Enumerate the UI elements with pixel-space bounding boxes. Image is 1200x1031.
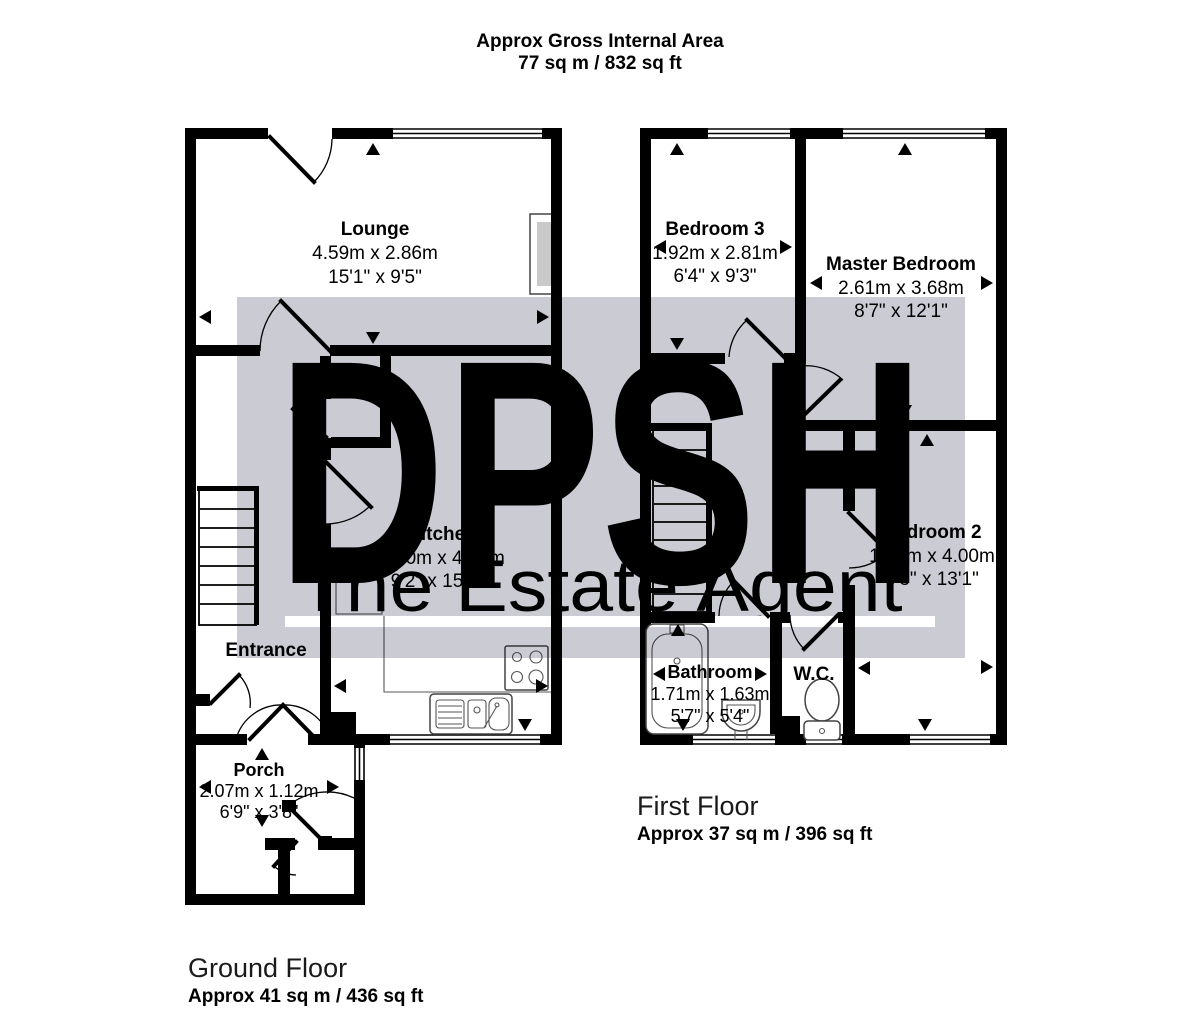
porch-label: Porch — [233, 760, 284, 780]
kitchen-sink — [430, 694, 512, 734]
header-area: 77 sq m / 832 sq ft — [518, 53, 682, 74]
first-floor-title: First Floor — [637, 791, 759, 821]
bathroom-imperial: 5'7" x 5'4" — [671, 706, 750, 726]
wc-label: W.C. — [793, 664, 834, 685]
lounge-metric: 4.59m x 2.86m — [312, 243, 438, 264]
porch-imperial: 6'9" x 3'8" — [220, 802, 299, 822]
first-floor-area: Approx 37 sq m / 396 sq ft — [637, 824, 873, 845]
toilet — [804, 679, 840, 740]
header-title: Approx Gross Internal Area — [476, 31, 724, 52]
lounge-label: Lounge — [341, 219, 410, 240]
bedroom3-label: Bedroom 3 — [665, 219, 764, 240]
master-bedroom-label: Master Bedroom — [826, 254, 976, 275]
lounge-imperial: 15'1" x 9'5" — [328, 267, 422, 288]
ground-floor-title: Ground Floor — [188, 953, 347, 983]
bedroom3-metric: 1.92m x 2.81m — [652, 243, 778, 264]
floorplan-page: Approx Gross Internal Area 77 sq m / 832… — [0, 0, 1200, 1031]
watermark: DPSH The Estate Agent — [237, 293, 965, 658]
bedroom3-imperial: 6'4" x 9'3" — [673, 266, 756, 287]
floorplan-canvas: Approx Gross Internal Area 77 sq m / 832… — [0, 0, 1200, 1031]
bathroom-metric: 1.71m x 1.63m — [650, 684, 769, 704]
watermark-underline — [285, 616, 935, 627]
watermark-tagline: The Estate Agent — [298, 546, 903, 627]
porch-metric: 2.07m x 1.12m — [199, 781, 318, 801]
ground-floor-area: Approx 41 sq m / 436 sq ft — [188, 986, 424, 1007]
bathroom-label: Bathroom — [668, 662, 753, 682]
